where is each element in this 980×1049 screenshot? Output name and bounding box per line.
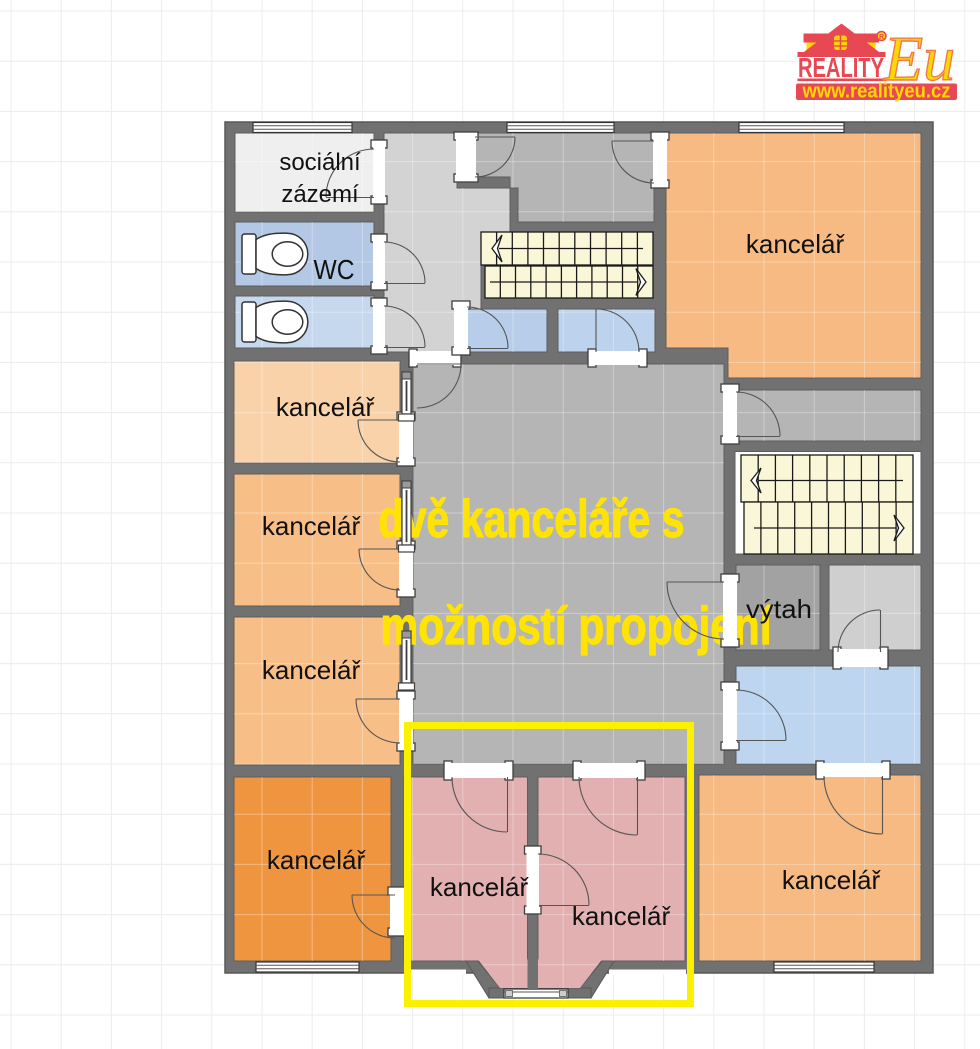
svg-text:výtah: výtah (746, 594, 812, 624)
svg-text:kancelář: kancelář (267, 845, 367, 875)
svg-text:kancelář: kancelář (430, 872, 530, 902)
svg-text:kancelář: kancelář (782, 865, 882, 895)
svg-text:dvě kanceláře s: dvě kanceláře s (379, 489, 685, 548)
svg-text:kancelář: kancelář (262, 655, 362, 685)
svg-text:www.realityeu.cz: www.realityeu.cz (802, 81, 951, 103)
svg-text:možností propojení: možností propojení (381, 596, 774, 655)
svg-text:kancelář: kancelář (746, 229, 846, 259)
svg-text:zázemí: zázemí (281, 181, 359, 208)
svg-text:WC: WC (314, 254, 355, 285)
svg-text:REALITY: REALITY (798, 52, 884, 83)
svg-text:sociální: sociální (279, 149, 361, 176)
svg-text:kancelář: kancelář (276, 392, 376, 422)
svg-text:kancelář: kancelář (262, 511, 362, 541)
svg-text:kancelář: kancelář (572, 901, 672, 931)
